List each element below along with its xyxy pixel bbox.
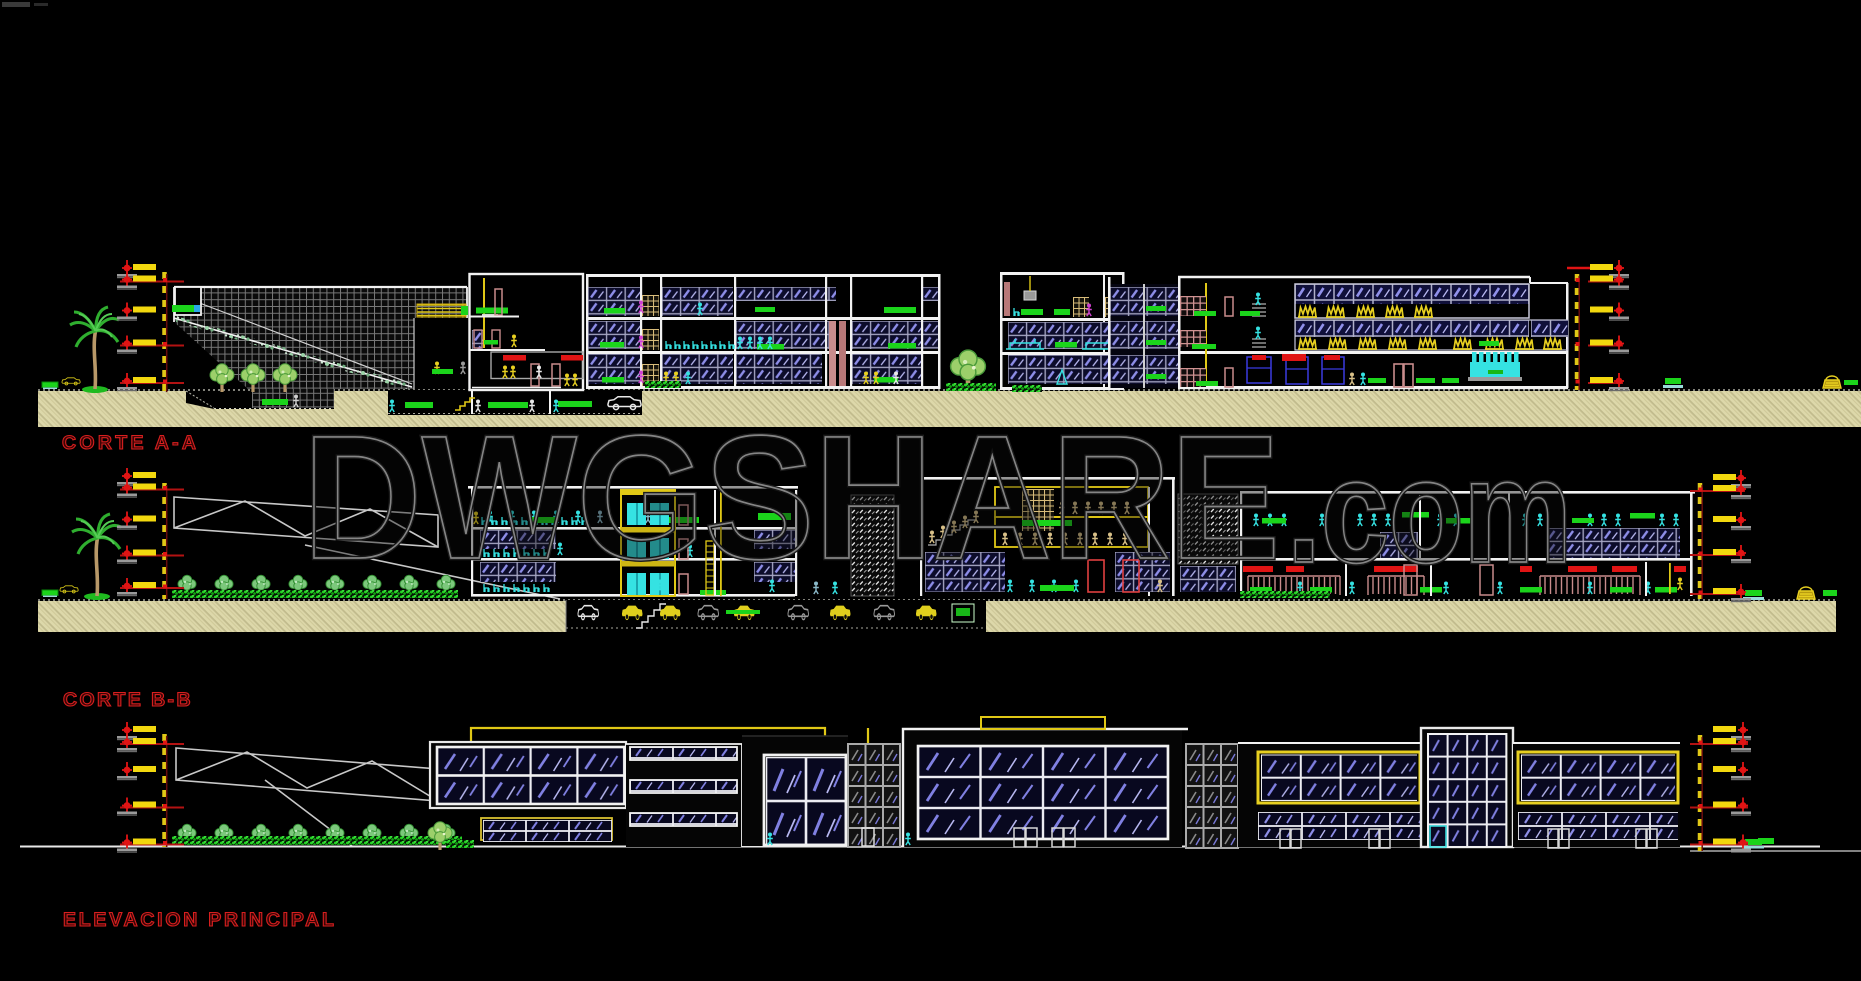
svg-text:ELEVACION PRINCIPAL: ELEVACION PRINCIPAL: [63, 909, 337, 931]
svg-text:.com: .com: [1287, 429, 1572, 594]
svg-text:DWGSHARE: DWGSHARE: [303, 400, 1280, 596]
svg-text:CORTE A-A: CORTE A-A: [62, 432, 199, 454]
svg-text:CORTE B-B: CORTE B-B: [63, 689, 193, 711]
